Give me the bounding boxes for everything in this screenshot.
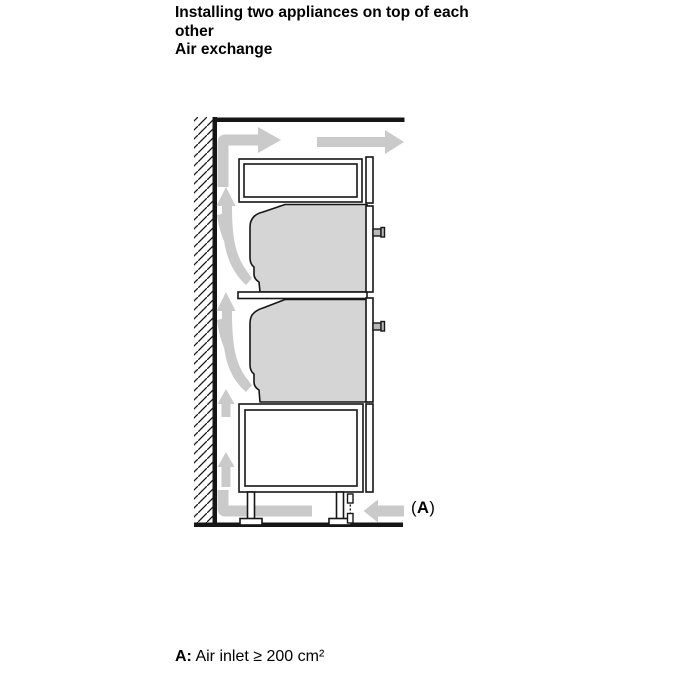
lower-oven-body [250, 300, 367, 403]
installation-diagram [0, 0, 700, 700]
base-compartment-inner [245, 410, 357, 486]
airflow-arrowhead-lower-icon [217, 292, 236, 311]
base-front-frame [366, 404, 373, 492]
air-inlet-arrow-icon [364, 500, 405, 523]
floor-line [194, 523, 403, 528]
airflow-arrowhead-upper-icon [217, 187, 236, 206]
upper-oven-body [250, 205, 367, 293]
plinth-marker-bottom [348, 514, 354, 524]
vent-front-frame [366, 157, 373, 203]
caption-text: Air inlet ≥ 200 cm² [192, 648, 324, 665]
airflow-arrow-small-up-1-icon [218, 389, 235, 417]
upper-oven-handle-cap-icon [381, 228, 385, 238]
caption-label: A: [175, 648, 192, 665]
wall-line [213, 117, 218, 527]
lower-oven-front-frame [366, 298, 373, 402]
middle-shelf [238, 292, 367, 299]
ceiling-line [213, 118, 405, 123]
airflow-arrow-bottom-left-icon [218, 490, 313, 517]
upper-oven-front-frame [366, 206, 373, 292]
air-inlet-callout: (A) [411, 499, 435, 518]
oven-handles [373, 228, 385, 332]
upper-oven-handle-icon [373, 229, 381, 236]
airflow-arrow-small-up-2-icon [218, 452, 235, 487]
callout-label: A [417, 499, 429, 517]
appliances [250, 205, 367, 403]
plinth-marker-top [348, 494, 354, 503]
callout-close-paren: ) [429, 499, 435, 517]
left-foot [240, 519, 262, 526]
figure-caption: A: Air inlet ≥ 200 cm² [175, 648, 324, 666]
vent-compartment-inner [244, 164, 357, 197]
wall-hatching [194, 117, 213, 523]
right-leg [337, 492, 344, 519]
lower-oven-handle-icon [373, 323, 381, 330]
left-leg [248, 492, 255, 519]
lower-oven-handle-cap-icon [381, 322, 385, 332]
airflow-arrow-top-right-icon [317, 130, 404, 154]
manual-page: Installing two appliances on top of each… [0, 0, 700, 700]
